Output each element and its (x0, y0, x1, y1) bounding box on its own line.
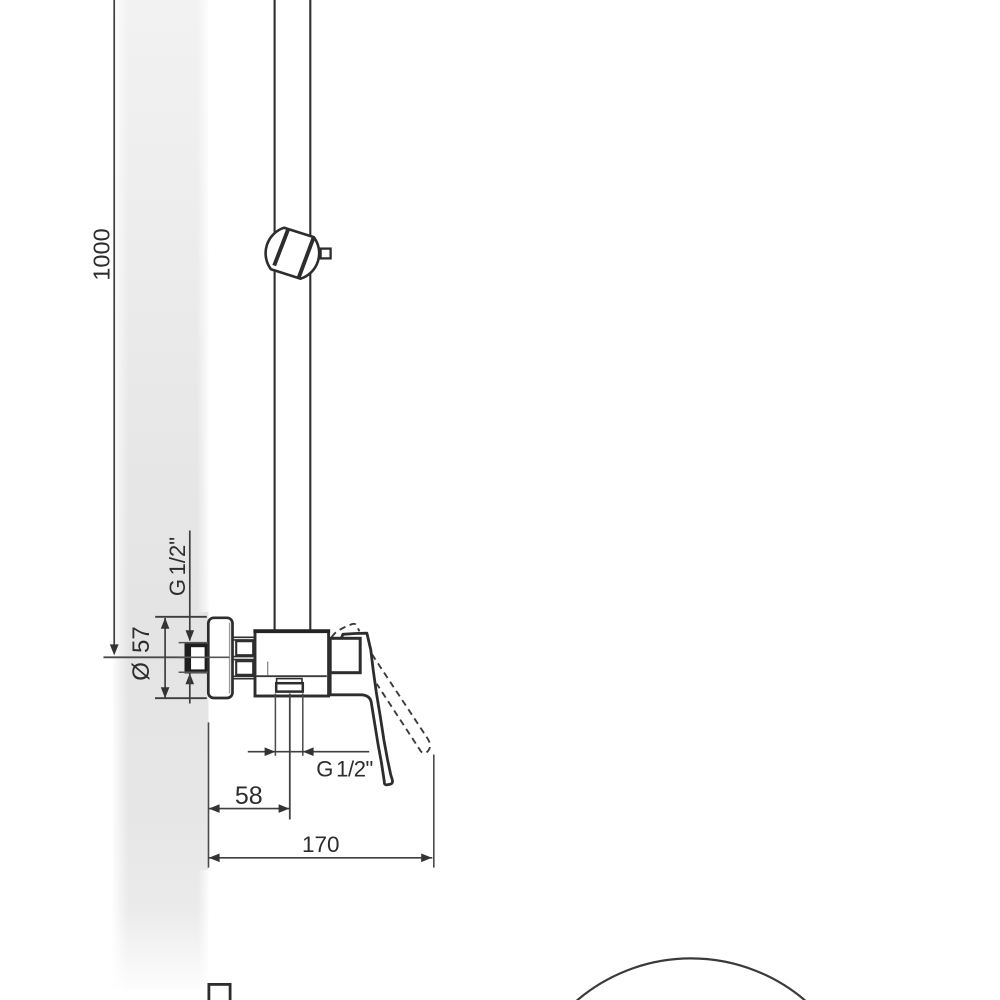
svg-text:170: 170 (302, 832, 340, 857)
svg-text:Ø57: Ø57 (128, 626, 155, 680)
svg-text:1000: 1000 (89, 228, 115, 280)
svg-text:G 1/2": G 1/2" (316, 756, 373, 781)
svg-text:G 1/2": G 1/2" (165, 537, 190, 596)
svg-text:58: 58 (235, 782, 263, 810)
